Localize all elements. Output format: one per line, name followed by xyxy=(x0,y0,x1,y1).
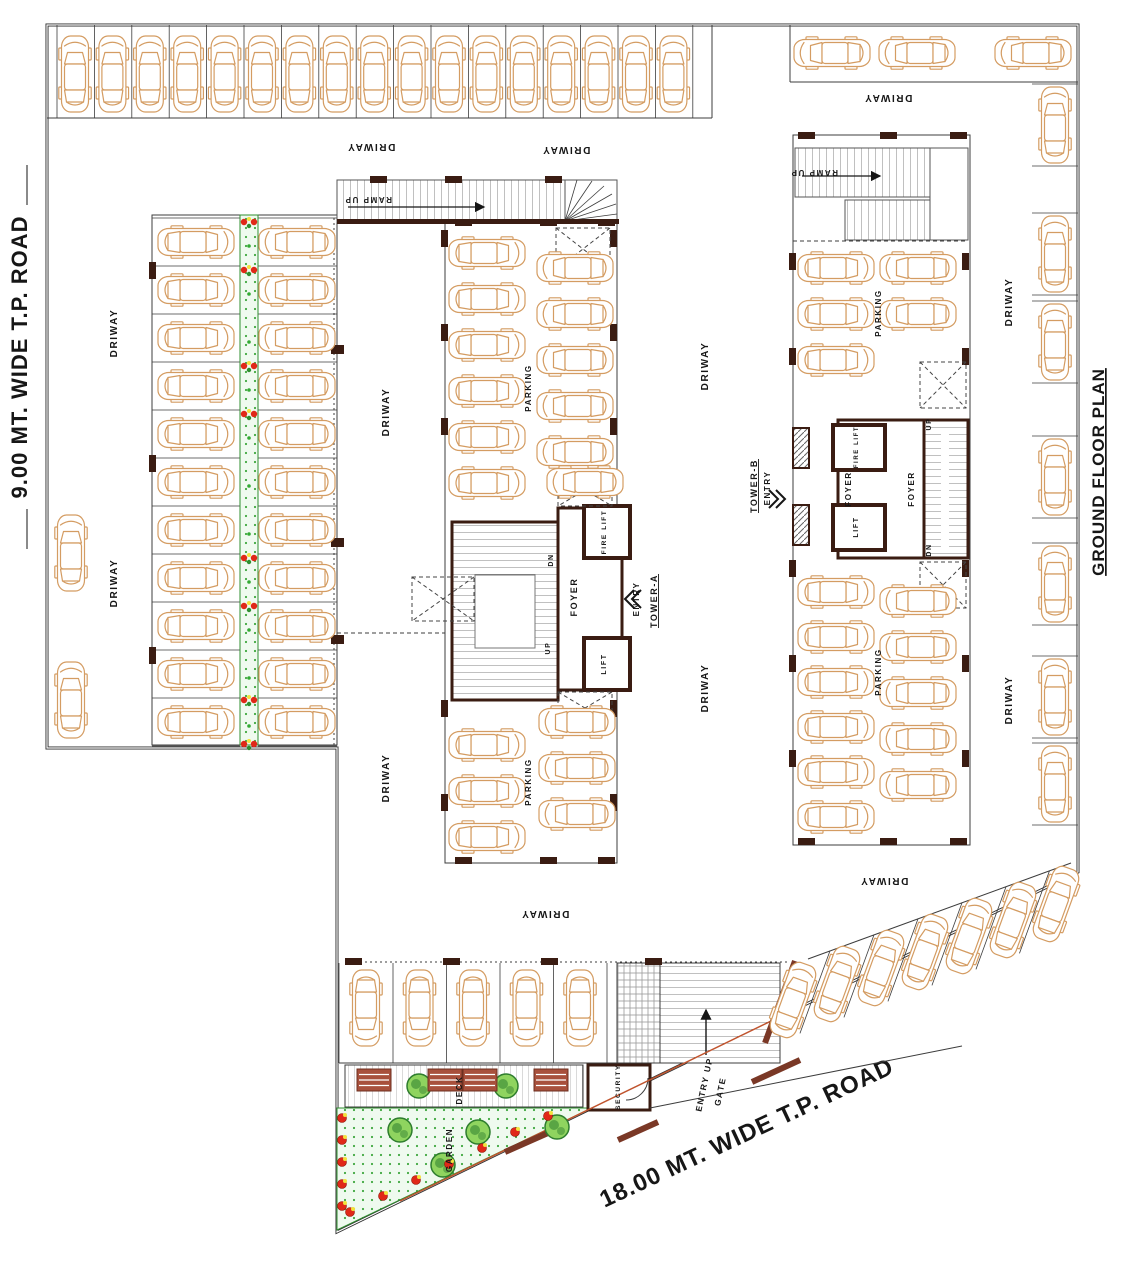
car xyxy=(259,226,335,258)
car xyxy=(1039,87,1071,163)
generated-drawing: DRIWAYDRIWAYDRIWAYDRIWAYDRIWAYDRIWAYDRIW… xyxy=(27,25,1084,1232)
car xyxy=(545,36,577,112)
fl xyxy=(241,603,247,609)
tree-inner xyxy=(478,1132,486,1140)
median-sprout xyxy=(247,676,251,680)
label-driway: DRIWAY xyxy=(700,342,711,391)
car xyxy=(582,36,614,112)
left-road-label: 9.00 MT. WIDE T.P. ROAD xyxy=(7,216,32,499)
car xyxy=(259,514,335,546)
car xyxy=(880,585,956,617)
ramp-a-landing xyxy=(565,180,617,222)
car xyxy=(564,970,596,1046)
bench xyxy=(463,1069,497,1091)
flower-bush xyxy=(338,1179,348,1189)
car xyxy=(158,370,234,402)
label-up: UP xyxy=(926,418,933,431)
label-parking: PARKING xyxy=(524,758,533,806)
car xyxy=(259,658,335,690)
wall-column xyxy=(798,132,815,139)
tree-inner xyxy=(411,1079,421,1089)
bush-yellow xyxy=(343,1179,347,1183)
car xyxy=(470,36,502,112)
wall-column xyxy=(880,132,897,139)
car xyxy=(1039,546,1071,622)
tree xyxy=(407,1074,431,1098)
car xyxy=(510,970,542,1046)
floor-plan-canvas: 9.00 MT. WIDE T.P. ROAD 18.00 MT. WIDE T… xyxy=(0,0,1129,1281)
wall-column xyxy=(370,176,387,183)
bush-yellow xyxy=(384,1191,388,1195)
label-driway: DRIWAY xyxy=(381,754,392,803)
median-sprout xyxy=(247,292,251,296)
car xyxy=(620,36,652,112)
label-driway: DRIWAY xyxy=(860,875,909,886)
bush-yellow xyxy=(417,1175,421,1179)
car xyxy=(259,610,335,642)
plan-title: GROUND FLOOR PLAN xyxy=(1089,368,1108,576)
car xyxy=(158,466,234,498)
label-driway: DRIWAY xyxy=(1004,676,1015,725)
label-foyer: FOYER xyxy=(844,471,853,507)
car xyxy=(158,610,234,642)
label-parking: PARKING xyxy=(874,648,883,696)
car xyxy=(283,36,315,112)
car xyxy=(449,775,525,807)
wall-column xyxy=(443,958,460,965)
car xyxy=(55,515,87,591)
wall-column xyxy=(789,655,796,672)
car xyxy=(880,677,956,709)
bench xyxy=(534,1069,568,1091)
car xyxy=(798,801,874,833)
tree-inner xyxy=(419,1086,427,1094)
label-fire-lift: FIRE LIFT xyxy=(601,510,608,555)
car xyxy=(259,562,335,594)
car xyxy=(158,562,234,594)
wall-column xyxy=(455,857,472,864)
flower-bush xyxy=(544,1111,554,1121)
flower-bush xyxy=(412,1175,422,1185)
tree-inner xyxy=(506,1086,514,1094)
wall-column xyxy=(950,132,967,139)
car xyxy=(537,390,613,422)
label-driway: DRIWAY xyxy=(381,388,392,437)
car xyxy=(134,36,166,112)
wall-column xyxy=(789,750,796,767)
car xyxy=(403,970,435,1046)
car xyxy=(259,418,335,450)
fl xyxy=(247,265,251,269)
car xyxy=(158,706,234,738)
car xyxy=(449,421,525,453)
fl xyxy=(247,272,251,276)
wall-column xyxy=(880,838,897,845)
wall-column xyxy=(610,324,617,341)
wall-column xyxy=(149,647,156,664)
median-sprout xyxy=(247,532,251,536)
car xyxy=(798,756,874,788)
car xyxy=(449,467,525,499)
stairs-a-landing xyxy=(475,575,535,648)
wall-column xyxy=(950,838,967,845)
median-sprout xyxy=(247,244,251,248)
car xyxy=(539,706,615,738)
label-deck: DECK xyxy=(455,1075,464,1104)
tree-inner xyxy=(470,1125,480,1135)
paved-walkway xyxy=(617,963,660,1063)
car xyxy=(995,37,1071,69)
wall-column xyxy=(798,838,815,845)
car xyxy=(449,237,525,269)
car xyxy=(880,252,956,284)
bush-yellow xyxy=(483,1143,487,1147)
flower-bush xyxy=(379,1191,389,1201)
fl xyxy=(241,697,247,703)
label-driway: DRIWAY xyxy=(1004,278,1015,327)
label-driway: DRIWAY xyxy=(109,559,120,608)
fl xyxy=(247,368,251,372)
car xyxy=(395,36,427,112)
wall-column xyxy=(540,219,557,226)
stairs-b-top xyxy=(845,200,930,240)
car xyxy=(1039,659,1071,735)
car xyxy=(433,36,465,112)
bush-yellow xyxy=(516,1127,520,1131)
car xyxy=(798,711,874,743)
flower-bush xyxy=(338,1113,348,1123)
car xyxy=(158,658,234,690)
car xyxy=(96,36,128,112)
label-driway: DRIWAY xyxy=(521,908,570,919)
label-up: UP xyxy=(545,642,552,655)
gate-wall-bar xyxy=(618,1122,658,1140)
wall-column xyxy=(789,253,796,270)
fl xyxy=(247,217,251,221)
car xyxy=(657,36,689,112)
tree xyxy=(388,1118,412,1142)
bush-yellow xyxy=(351,1207,355,1211)
flower-bush xyxy=(338,1157,348,1167)
fl xyxy=(251,555,257,561)
median-sprout xyxy=(247,628,251,632)
flower-bush xyxy=(338,1201,348,1211)
car xyxy=(208,36,240,112)
wall-column xyxy=(345,958,362,965)
fl xyxy=(247,409,251,413)
car xyxy=(259,370,335,402)
car xyxy=(537,298,613,330)
car xyxy=(449,283,525,315)
wall-column xyxy=(962,750,969,767)
label-driway: DRIWAY xyxy=(700,664,711,713)
median-sprout xyxy=(247,388,251,392)
fl xyxy=(251,219,257,225)
car xyxy=(59,36,91,112)
fl xyxy=(251,697,257,703)
fl xyxy=(247,702,251,706)
car xyxy=(880,769,956,801)
label-parking: PARKING xyxy=(874,289,883,337)
wall-column xyxy=(441,230,448,247)
wall-column xyxy=(149,455,156,472)
label-driway: DRIWAY xyxy=(542,144,591,155)
bush-yellow xyxy=(343,1157,347,1161)
car xyxy=(798,576,874,608)
tree-inner xyxy=(400,1130,408,1138)
wall-column xyxy=(445,176,462,183)
car xyxy=(537,436,613,468)
bush-yellow xyxy=(343,1201,347,1205)
median-sprout xyxy=(247,724,251,728)
wall-column xyxy=(962,655,969,672)
car xyxy=(158,514,234,546)
car xyxy=(880,298,956,330)
fl xyxy=(247,695,251,699)
fl xyxy=(241,219,247,225)
wall-column xyxy=(540,857,557,864)
label-garden: GARDEN xyxy=(445,1128,454,1172)
car xyxy=(449,329,525,361)
fl xyxy=(241,741,247,747)
car xyxy=(798,298,874,330)
flower-bush xyxy=(338,1135,348,1145)
wall-column xyxy=(789,560,796,577)
median-sprout xyxy=(247,340,251,344)
car xyxy=(449,821,525,853)
label-fire-lift: FIRE LIFT xyxy=(854,426,860,468)
flower-bush xyxy=(478,1143,488,1153)
bench xyxy=(357,1069,391,1091)
label-entry: ENTRY xyxy=(632,582,641,617)
tree-inner xyxy=(392,1123,402,1133)
label-gate: GATE xyxy=(712,1076,728,1107)
car xyxy=(880,631,956,663)
car xyxy=(879,37,955,69)
flower-bush xyxy=(346,1207,356,1217)
car xyxy=(794,37,870,69)
car xyxy=(158,274,234,306)
wall-column xyxy=(441,418,448,435)
car xyxy=(321,36,353,112)
car xyxy=(158,418,234,450)
car xyxy=(508,36,540,112)
label-dn: DN xyxy=(548,553,555,566)
bush-yellow xyxy=(549,1111,553,1115)
label-security: SECURITY xyxy=(615,1064,622,1110)
wall-column xyxy=(455,219,472,226)
label-lift: LIFT xyxy=(601,653,608,674)
car xyxy=(547,466,623,498)
car xyxy=(350,970,382,1046)
car xyxy=(259,322,335,354)
car xyxy=(259,274,335,306)
car xyxy=(449,375,525,407)
car xyxy=(457,970,489,1046)
ramp-b-landing xyxy=(930,148,968,240)
label-foyer: FOYER xyxy=(907,471,916,507)
fl xyxy=(241,363,247,369)
car xyxy=(880,723,956,755)
tree-inner xyxy=(498,1079,508,1089)
fl xyxy=(247,560,251,564)
wall-column xyxy=(610,230,617,247)
wall-column xyxy=(441,324,448,341)
car xyxy=(1039,304,1071,380)
floor-plan-page: 9.00 MT. WIDE T.P. ROAD 18.00 MT. WIDE T… xyxy=(0,0,1129,1281)
fl xyxy=(251,363,257,369)
label-entry: ENTRY xyxy=(763,471,772,506)
car xyxy=(55,662,87,738)
wall-column xyxy=(598,219,615,226)
wall-column xyxy=(149,262,156,279)
tree-inner xyxy=(435,1158,445,1168)
car xyxy=(1039,216,1071,292)
fl xyxy=(247,608,251,612)
median-sprout xyxy=(247,436,251,440)
wall-column xyxy=(598,857,615,864)
median-sprout xyxy=(247,580,251,584)
car xyxy=(358,36,390,112)
label-parking: PARKING xyxy=(524,364,533,412)
fl xyxy=(251,267,257,273)
fl xyxy=(241,411,247,417)
car xyxy=(798,666,874,698)
car xyxy=(798,621,874,653)
fl xyxy=(247,739,251,743)
car xyxy=(259,706,335,738)
wall-column xyxy=(789,348,796,365)
car xyxy=(449,729,525,761)
label-driway: DRIWAY xyxy=(109,309,120,358)
wall-column xyxy=(545,176,562,183)
car xyxy=(1039,439,1071,515)
label-ramp-up: RAMP UP xyxy=(790,168,838,177)
flower-bush xyxy=(511,1127,521,1137)
label-dn: DN xyxy=(926,543,933,556)
car xyxy=(537,344,613,376)
tree xyxy=(466,1120,490,1144)
bush-yellow xyxy=(343,1135,347,1139)
car xyxy=(539,752,615,784)
car xyxy=(798,252,874,284)
wall-column xyxy=(962,253,969,270)
wall-column xyxy=(441,794,448,811)
label-tower-b: TOWER-B xyxy=(749,459,759,513)
car xyxy=(798,344,874,376)
fl xyxy=(241,555,247,561)
car xyxy=(537,252,613,284)
fl xyxy=(247,601,251,605)
wall-column xyxy=(645,958,662,965)
tree-inner xyxy=(549,1120,559,1130)
bush-yellow xyxy=(343,1113,347,1117)
label-driway: DRIWAY xyxy=(864,92,913,103)
label-lift: LIFT xyxy=(853,516,860,537)
entry-drive xyxy=(660,963,780,1063)
car xyxy=(246,36,278,112)
label-foyer: FOYER xyxy=(569,577,579,616)
fl xyxy=(251,603,257,609)
fl xyxy=(247,224,251,228)
fl xyxy=(247,746,251,750)
fl xyxy=(247,361,251,365)
fl xyxy=(251,411,257,417)
label-driway: DRIWAY xyxy=(347,141,396,152)
car xyxy=(259,466,335,498)
car xyxy=(158,226,234,258)
wall-column xyxy=(541,958,558,965)
wall-column xyxy=(441,700,448,717)
tree-inner xyxy=(557,1127,565,1135)
tree xyxy=(494,1074,518,1098)
car xyxy=(158,322,234,354)
stairs-b-rail xyxy=(941,428,949,550)
car xyxy=(539,798,615,830)
label-tower-a: TOWER-A xyxy=(649,574,659,628)
fl xyxy=(241,267,247,273)
median-sprout xyxy=(247,484,251,488)
wall-column xyxy=(610,418,617,435)
wall-bar xyxy=(337,219,619,224)
column-box xyxy=(793,428,809,468)
label-ramp-up: RAMP UP xyxy=(344,195,392,204)
fl xyxy=(247,416,251,420)
car xyxy=(1039,746,1071,822)
fl xyxy=(247,553,251,557)
column-box xyxy=(793,505,809,545)
car xyxy=(171,36,203,112)
fl xyxy=(251,741,257,747)
